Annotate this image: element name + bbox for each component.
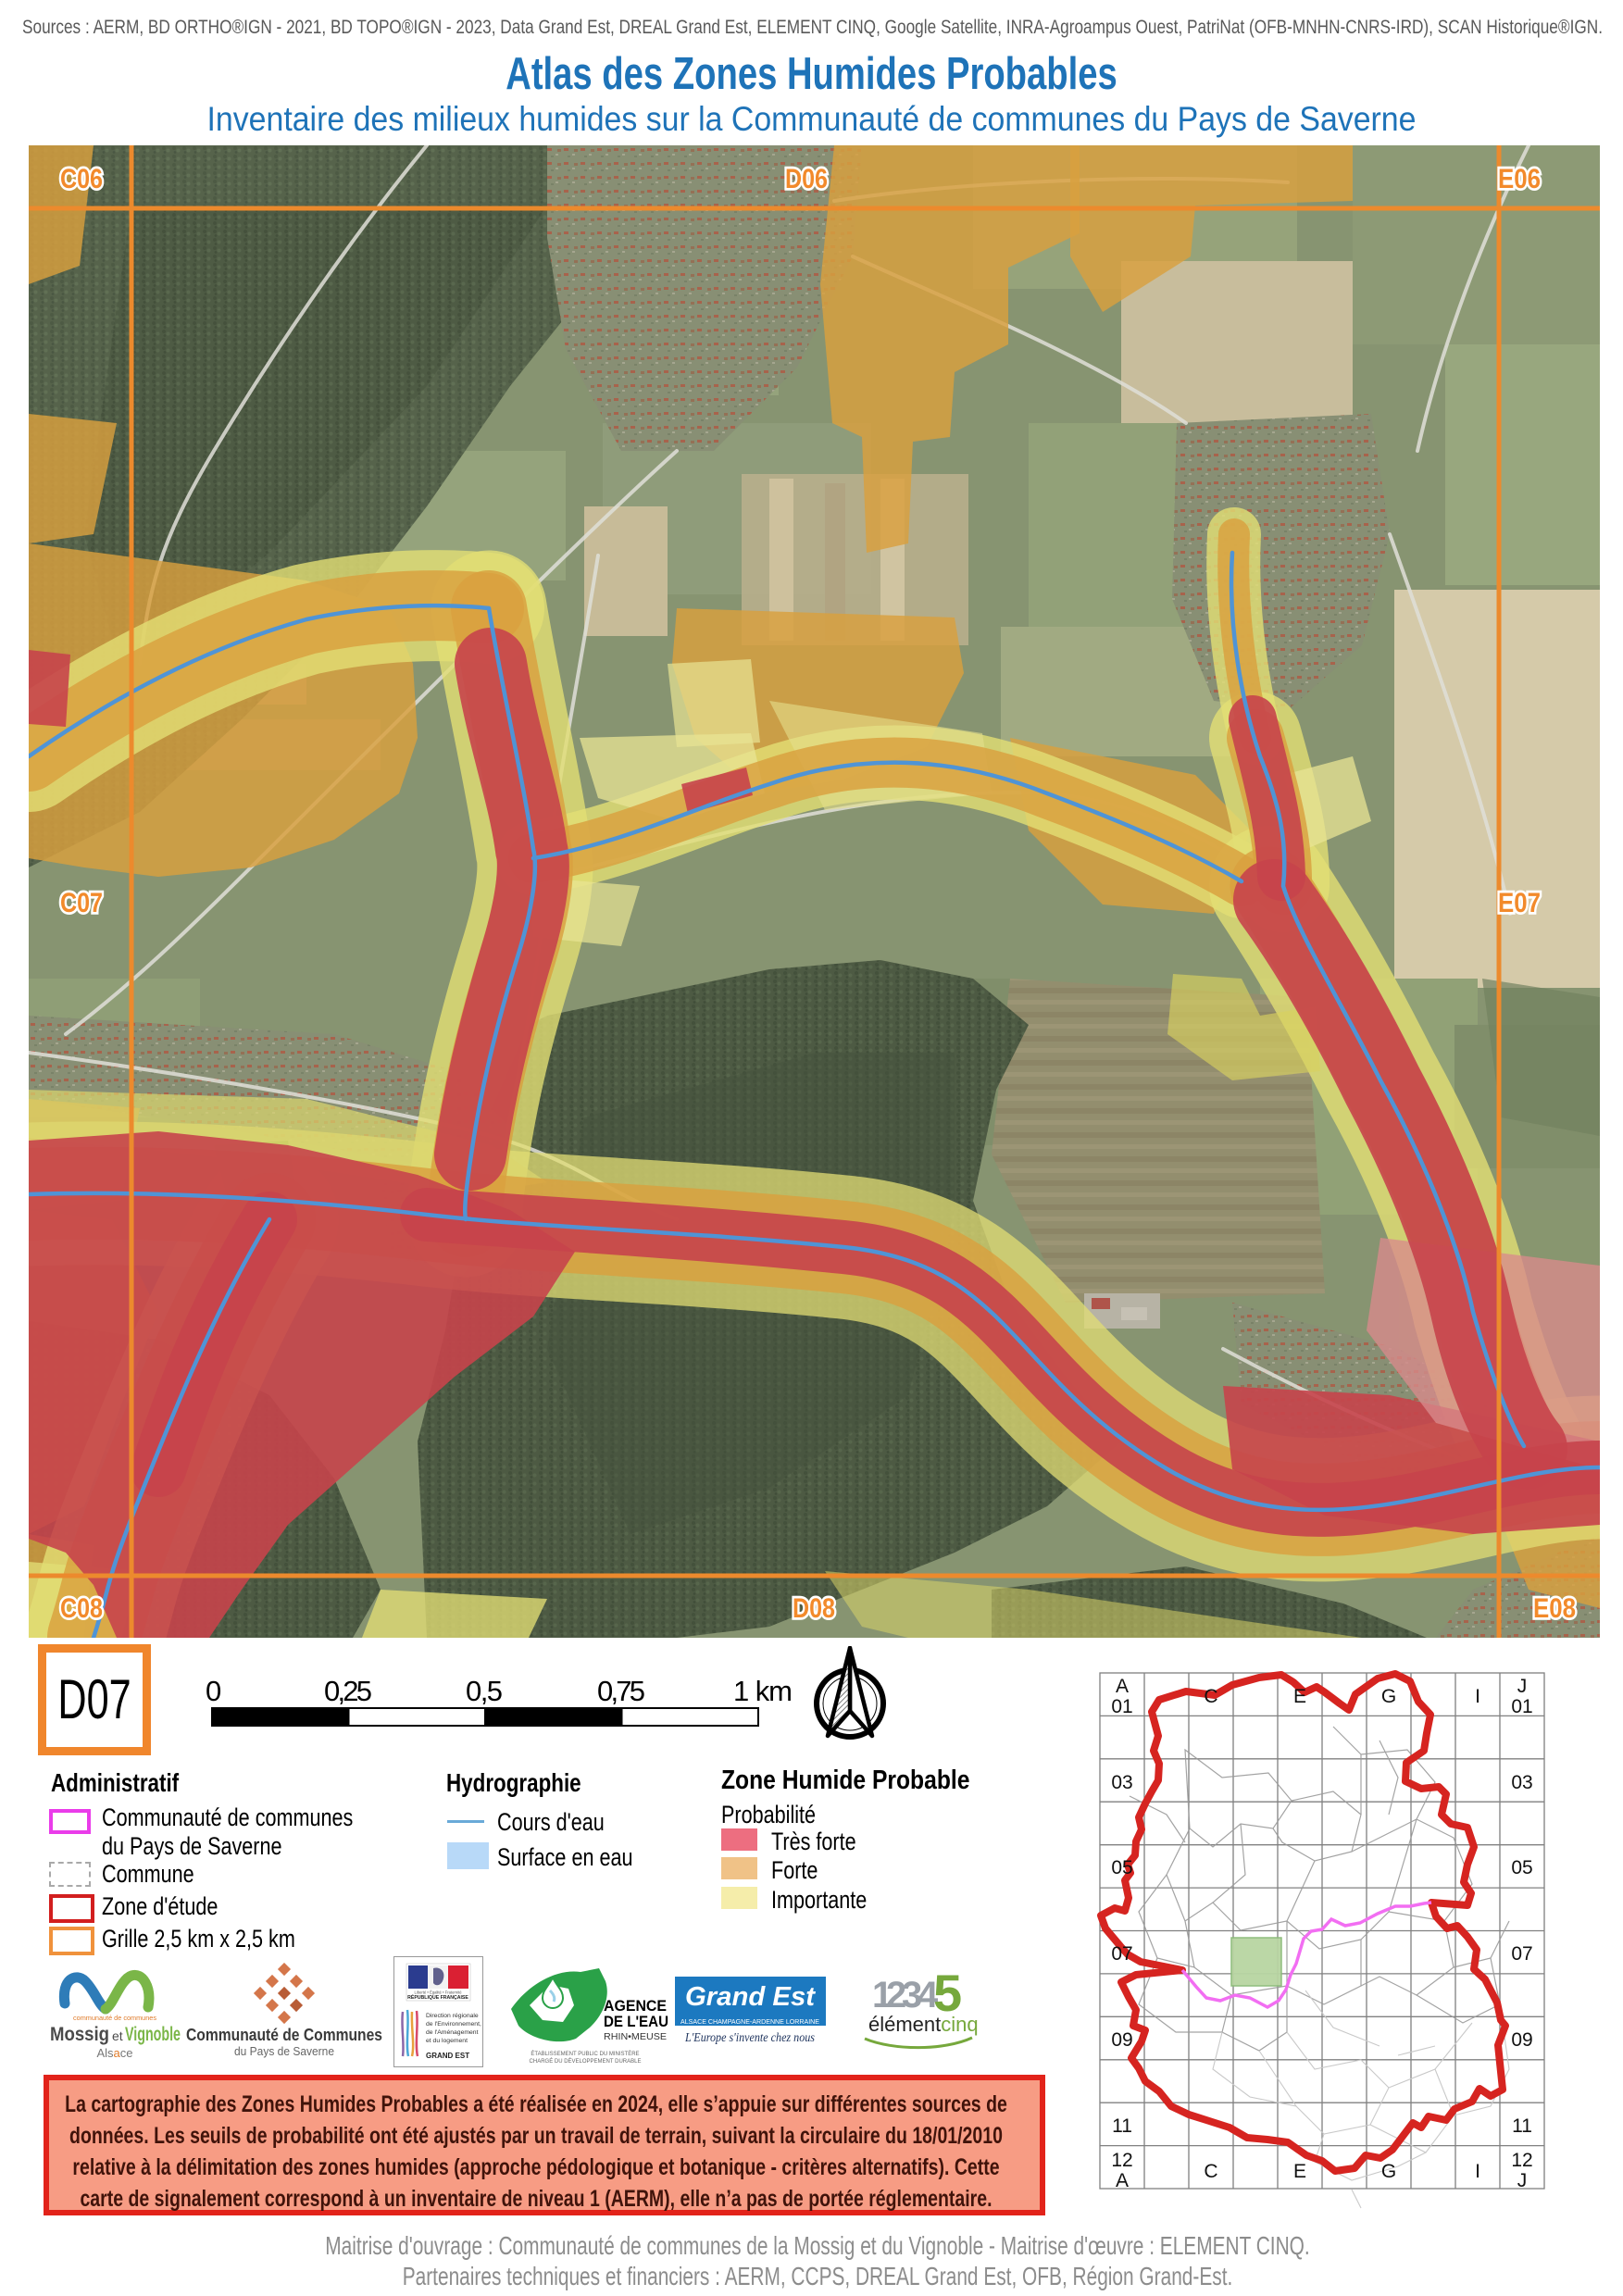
svg-text:de l'Aménagement: de l'Aménagement xyxy=(426,2029,479,2036)
svg-text:CHARGÉ DU DÉVELOPPEMENT DURABL: CHARGÉ DU DÉVELOPPEMENT DURABLE xyxy=(530,2058,642,2065)
svg-text:C: C xyxy=(1204,2161,1217,2182)
svg-text:L'Europe s'invente chez nous: L'Europe s'invente chez nous xyxy=(684,2031,815,2045)
svg-text:11: 11 xyxy=(1512,2115,1532,2137)
svg-text:de l'Environnement,: de l'Environnement, xyxy=(426,2021,481,2028)
svg-text:05: 05 xyxy=(1511,1857,1532,1878)
svg-text:Mossig: Mossig xyxy=(50,2024,109,2045)
svg-text:I: I xyxy=(1475,2161,1480,2182)
svg-text:E06: E06 xyxy=(1498,164,1541,194)
svg-text:03: 03 xyxy=(1511,1772,1532,1793)
svg-text:DE L'EAU: DE L'EAU xyxy=(604,2014,668,2030)
svg-text:Alsace: Alsace xyxy=(96,2046,132,2060)
svg-text:C07: C07 xyxy=(60,888,103,918)
svg-text:0: 0 xyxy=(206,1675,221,1707)
svg-text:élémentcinq: élémentcinq xyxy=(868,2013,979,2036)
svg-text:07: 07 xyxy=(1511,1943,1532,1965)
svg-text:01: 01 xyxy=(1111,1696,1132,1717)
svg-text:D06: D06 xyxy=(785,164,828,194)
svg-text:du Pays de Saverne: du Pays de Saverne xyxy=(234,2045,334,2058)
svg-text:Vignoble: Vignoble xyxy=(125,2024,181,2045)
svg-text:C06: C06 xyxy=(60,164,103,194)
svg-text:J: J xyxy=(1517,2170,1528,2191)
svg-text:E08: E08 xyxy=(1533,1593,1576,1624)
svg-text:E: E xyxy=(1293,1686,1306,1707)
svg-text:01: 01 xyxy=(1511,1696,1532,1717)
svg-text:RHIN•MEUSE: RHIN•MEUSE xyxy=(604,2031,667,2042)
svg-text:J: J xyxy=(1517,1676,1528,1697)
svg-text:0,25: 0,25 xyxy=(324,1675,372,1707)
svg-text:A: A xyxy=(1116,2170,1129,2191)
svg-text:05: 05 xyxy=(1111,1857,1132,1878)
svg-text:03: 03 xyxy=(1111,1772,1132,1793)
svg-text:AGENCE: AGENCE xyxy=(604,1998,667,2015)
svg-text:E: E xyxy=(1293,2161,1306,2182)
svg-text:12: 12 xyxy=(1111,2150,1132,2171)
svg-text:09: 09 xyxy=(1111,2029,1132,2051)
svg-text:et du logement: et du logement xyxy=(426,2038,468,2044)
svg-text:Communauté de Communes: Communauté de Communes xyxy=(186,2026,382,2044)
svg-text:0,75: 0,75 xyxy=(597,1675,645,1707)
svg-text:GRAND EST: GRAND EST xyxy=(426,2052,469,2060)
svg-text:A: A xyxy=(1116,1676,1129,1697)
svg-text:1 km: 1 km xyxy=(733,1675,793,1707)
svg-text:I: I xyxy=(1475,1686,1480,1707)
svg-text:07: 07 xyxy=(1111,1943,1132,1965)
svg-text:RÉPUBLIQUE FRANÇAISE: RÉPUBLIQUE FRANÇAISE xyxy=(407,1993,468,2001)
svg-text:12: 12 xyxy=(1511,2150,1532,2171)
svg-text:09: 09 xyxy=(1511,2029,1532,2051)
svg-text:C: C xyxy=(1204,1686,1217,1707)
svg-text:Liberté • Égalité • Fraternité: Liberté • Égalité • Fraternité xyxy=(414,1990,462,1995)
svg-text:E07: E07 xyxy=(1498,888,1541,918)
svg-text:0,5: 0,5 xyxy=(466,1675,503,1707)
svg-text:ALSACE CHAMPAGNE-ARDENNE LORRA: ALSACE CHAMPAGNE-ARDENNE LORRAINE xyxy=(680,2017,819,2026)
svg-text:et: et xyxy=(112,2028,123,2043)
svg-text:G: G xyxy=(1381,1686,1396,1707)
svg-text:communauté de communes: communauté de communes xyxy=(73,2015,157,2022)
svg-text:Grand Est: Grand Est xyxy=(685,1982,816,2012)
svg-text:G: G xyxy=(1381,2161,1396,2182)
svg-text:C08: C08 xyxy=(60,1593,103,1624)
svg-text:ÉTABLISSEMENT PUBLIC DU MINIST: ÉTABLISSEMENT PUBLIC DU MINISTÈRE xyxy=(531,2051,639,2057)
svg-text:D08: D08 xyxy=(793,1593,835,1624)
svg-text:Direction régionale: Direction régionale xyxy=(426,2013,479,2019)
svg-text:11: 11 xyxy=(1112,2115,1132,2137)
